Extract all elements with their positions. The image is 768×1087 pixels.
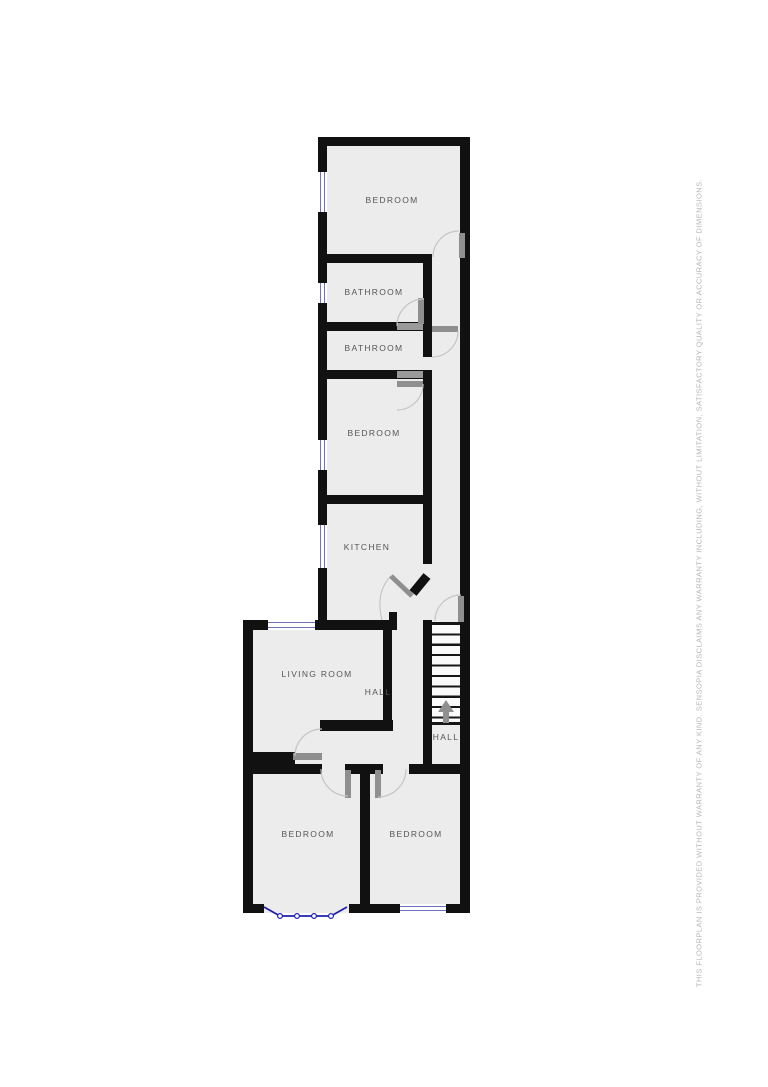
floorplan-canvas: BEDROOM BATHROOM BATHROOM BEDROOM KITCHE…	[0, 0, 768, 1087]
staircase	[432, 622, 460, 725]
wall-corridor-upper	[423, 254, 432, 357]
bay-window-node	[278, 914, 283, 919]
wall-hall-bedrooms-3	[409, 764, 470, 774]
room-label-bedroom-top: BEDROOM	[365, 195, 418, 205]
wall-bottom-left	[243, 904, 264, 913]
wall-corridor-lower	[423, 371, 432, 564]
room-label-bedroom-bl: BEDROOM	[281, 829, 334, 839]
wall-hall-bedrooms-1	[243, 764, 322, 774]
window-bathroom-upper	[318, 283, 327, 303]
door-leaf-bathroom-lower	[432, 326, 458, 332]
wall-livingroom-bottom-left	[243, 752, 295, 764]
upper-wing-floor	[318, 137, 470, 628]
room-label-bedroom-mid: BEDROOM	[347, 428, 400, 438]
wall-bedroom-kitchen-divider	[318, 495, 432, 504]
door-leaf-bedroom-top	[459, 233, 465, 258]
bay-window-node	[295, 914, 300, 919]
bay-window-node	[329, 914, 334, 919]
door-leaf-bedroom-br	[375, 770, 381, 798]
doorway-bedroom-mid	[397, 371, 423, 378]
wall-livingroom-right	[383, 620, 392, 731]
door-leaf-bedroom-mid	[397, 381, 423, 387]
window-kitchen	[318, 525, 327, 568]
bay-window-node	[312, 914, 317, 919]
window-living-room	[268, 620, 315, 630]
door-leaf-bedroom-bl	[345, 770, 351, 798]
door-leaf-entry	[458, 596, 464, 622]
room-label-bedroom-br: BEDROOM	[389, 829, 442, 839]
window-bedroom-br	[400, 904, 446, 913]
wall-bottom-right	[446, 904, 470, 913]
room-label-living-room: LIVING ROOM	[282, 669, 353, 679]
wall-livingroom-bottom	[320, 720, 393, 731]
doorway-bathroom-upper	[397, 323, 423, 330]
wall-bedrooms-divider	[360, 764, 370, 913]
window-bedroom-mid	[318, 440, 327, 470]
wall-bottom-middle	[349, 904, 400, 913]
wall-stairwell	[423, 620, 432, 774]
window-bedroom-top	[318, 172, 327, 212]
room-label-kitchen: KITCHEN	[344, 542, 390, 552]
room-label-hall-landing: HALL	[433, 732, 459, 742]
disclaimer-text: THIS FLOORPLAN IS PROVIDED WITHOUT WARRA…	[695, 179, 704, 987]
room-label-bathroom-lower: BATHROOM	[345, 343, 404, 353]
wall-bedroom-bathroom-divider	[318, 254, 432, 263]
wall-wing-top	[318, 137, 470, 146]
room-label-bathroom-upper: BATHROOM	[345, 287, 404, 297]
room-label-hall-main: HALL	[365, 687, 391, 697]
door-leaf-living-room	[293, 753, 322, 760]
door-leaf-bathroom-upper	[418, 298, 424, 324]
